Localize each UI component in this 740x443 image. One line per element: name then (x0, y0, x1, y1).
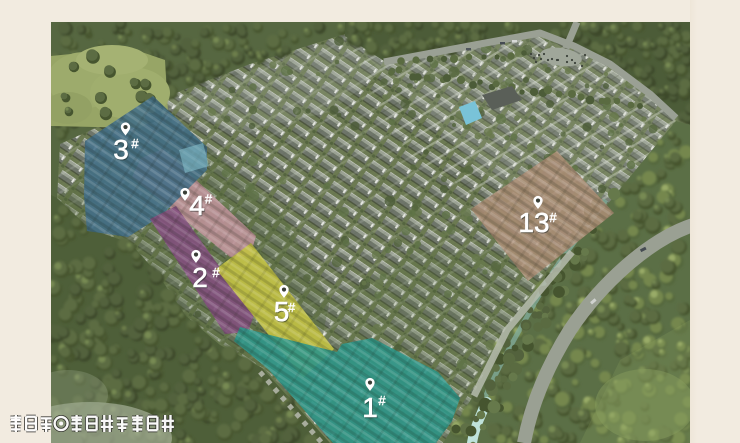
svg-text:13: 13 (518, 207, 549, 238)
svg-text:2: 2 (192, 262, 208, 293)
svg-text:#: # (378, 393, 386, 408)
svg-text:1: 1 (362, 392, 378, 423)
svg-text:#: # (131, 136, 139, 151)
svg-text:4: 4 (189, 190, 205, 221)
svg-text:#: # (205, 192, 213, 207)
svg-text:#: # (212, 265, 220, 280)
svg-text:#: # (549, 210, 557, 225)
svg-text:#: # (288, 300, 296, 315)
svg-text:3: 3 (113, 134, 129, 165)
